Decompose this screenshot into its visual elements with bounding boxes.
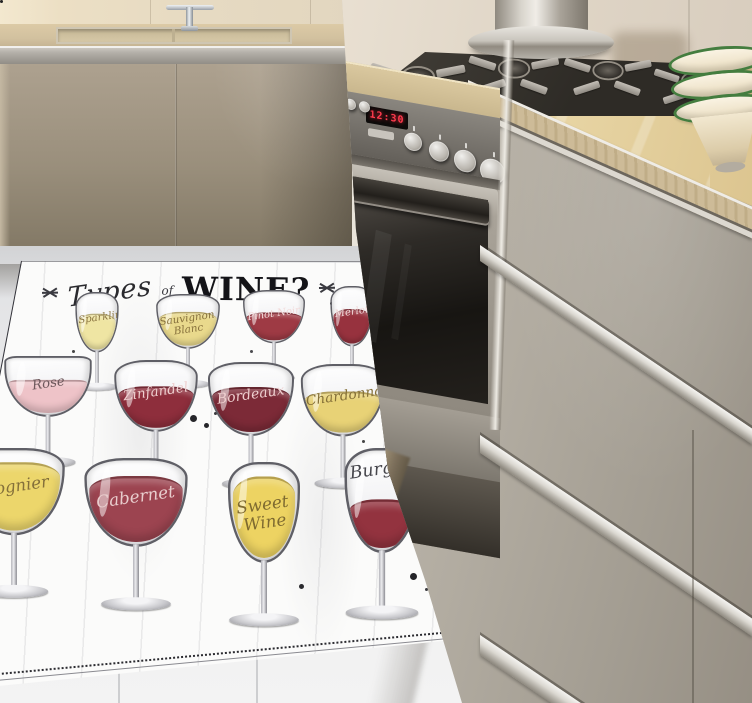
knob-tick-mark [465, 143, 467, 148]
burner-grate [565, 48, 651, 95]
sink-divider [172, 29, 175, 42]
cabinet-door-seam [175, 64, 177, 248]
oven-knob[interactable] [429, 140, 449, 164]
cabinet-left-edge [0, 64, 10, 248]
glass-reflection [391, 243, 411, 340]
drawer-handle[interactable] [480, 435, 752, 636]
oven-knob[interactable] [359, 100, 370, 113]
back-cabinet-doors [0, 64, 352, 248]
knob-tick-mark [439, 134, 441, 139]
floor-tile-seam [256, 654, 258, 703]
counter-edge-trim [0, 46, 352, 64]
knob-tick-mark [493, 152, 495, 157]
drawer-vertical-seam [692, 430, 694, 703]
kitchen-scene: Types of WINE? SparklingSauvignon BlancP… [0, 0, 752, 703]
burner-cap [592, 60, 625, 81]
knob-tick-mark [413, 126, 415, 131]
oven-knob[interactable] [454, 148, 476, 174]
cabinet-shadow [260, 64, 352, 248]
oven-knob[interactable] [404, 131, 422, 152]
drawer-handle[interactable] [480, 635, 752, 703]
faucet-base [181, 26, 198, 31]
bowl-stack [667, 41, 752, 192]
floor-tile-seam [118, 670, 120, 703]
